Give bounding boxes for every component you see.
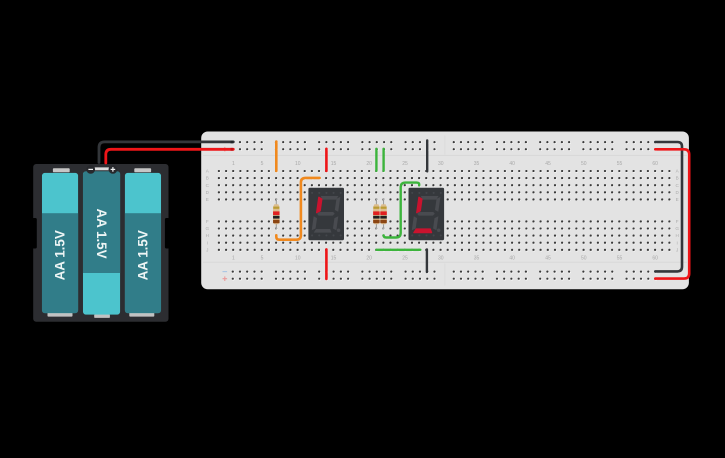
- svg-text:40: 40: [509, 161, 515, 167]
- svg-text:60: 60: [652, 161, 658, 167]
- svg-text:45: 45: [545, 255, 551, 261]
- svg-text:15: 15: [331, 161, 337, 167]
- svg-text:5: 5: [261, 255, 264, 261]
- svg-text:25: 25: [402, 161, 408, 167]
- svg-text:J: J: [676, 247, 678, 252]
- svg-text:AA 1.5V: AA 1.5V: [94, 208, 109, 258]
- svg-text:55: 55: [617, 255, 623, 261]
- svg-text:1: 1: [232, 255, 235, 261]
- svg-text:I: I: [207, 240, 208, 245]
- svg-text:40: 40: [509, 255, 515, 261]
- svg-text:50: 50: [581, 255, 587, 261]
- svg-text:20: 20: [366, 161, 372, 167]
- svg-text:H: H: [206, 233, 209, 238]
- svg-text:E: E: [676, 197, 679, 202]
- svg-text:1: 1: [232, 161, 235, 167]
- svg-text:AA 1.5V: AA 1.5V: [136, 230, 151, 280]
- svg-text:I: I: [677, 240, 678, 245]
- svg-text:5: 5: [261, 161, 264, 167]
- svg-text:30: 30: [438, 255, 444, 261]
- svg-text:45: 45: [545, 161, 551, 167]
- svg-text:10: 10: [295, 161, 301, 167]
- svg-text:50: 50: [581, 161, 587, 167]
- svg-text:30: 30: [438, 161, 444, 167]
- svg-text:55: 55: [617, 161, 623, 167]
- svg-text:10: 10: [295, 255, 301, 261]
- svg-text:20: 20: [366, 255, 372, 261]
- svg-text:25: 25: [402, 255, 408, 261]
- svg-text:F: F: [676, 219, 679, 224]
- svg-text:AA 1.5V: AA 1.5V: [53, 230, 68, 280]
- svg-text:60: 60: [652, 255, 658, 261]
- svg-text:E: E: [206, 197, 209, 202]
- svg-text:35: 35: [474, 255, 480, 261]
- svg-text:B: B: [206, 176, 209, 181]
- svg-text:H: H: [676, 233, 679, 238]
- svg-text:G: G: [206, 226, 210, 231]
- svg-text:J: J: [206, 247, 208, 252]
- svg-text:G: G: [675, 226, 679, 231]
- svg-text:F: F: [206, 219, 209, 224]
- svg-text:B: B: [676, 176, 679, 181]
- svg-text:35: 35: [474, 161, 480, 167]
- svg-text:15: 15: [331, 255, 337, 261]
